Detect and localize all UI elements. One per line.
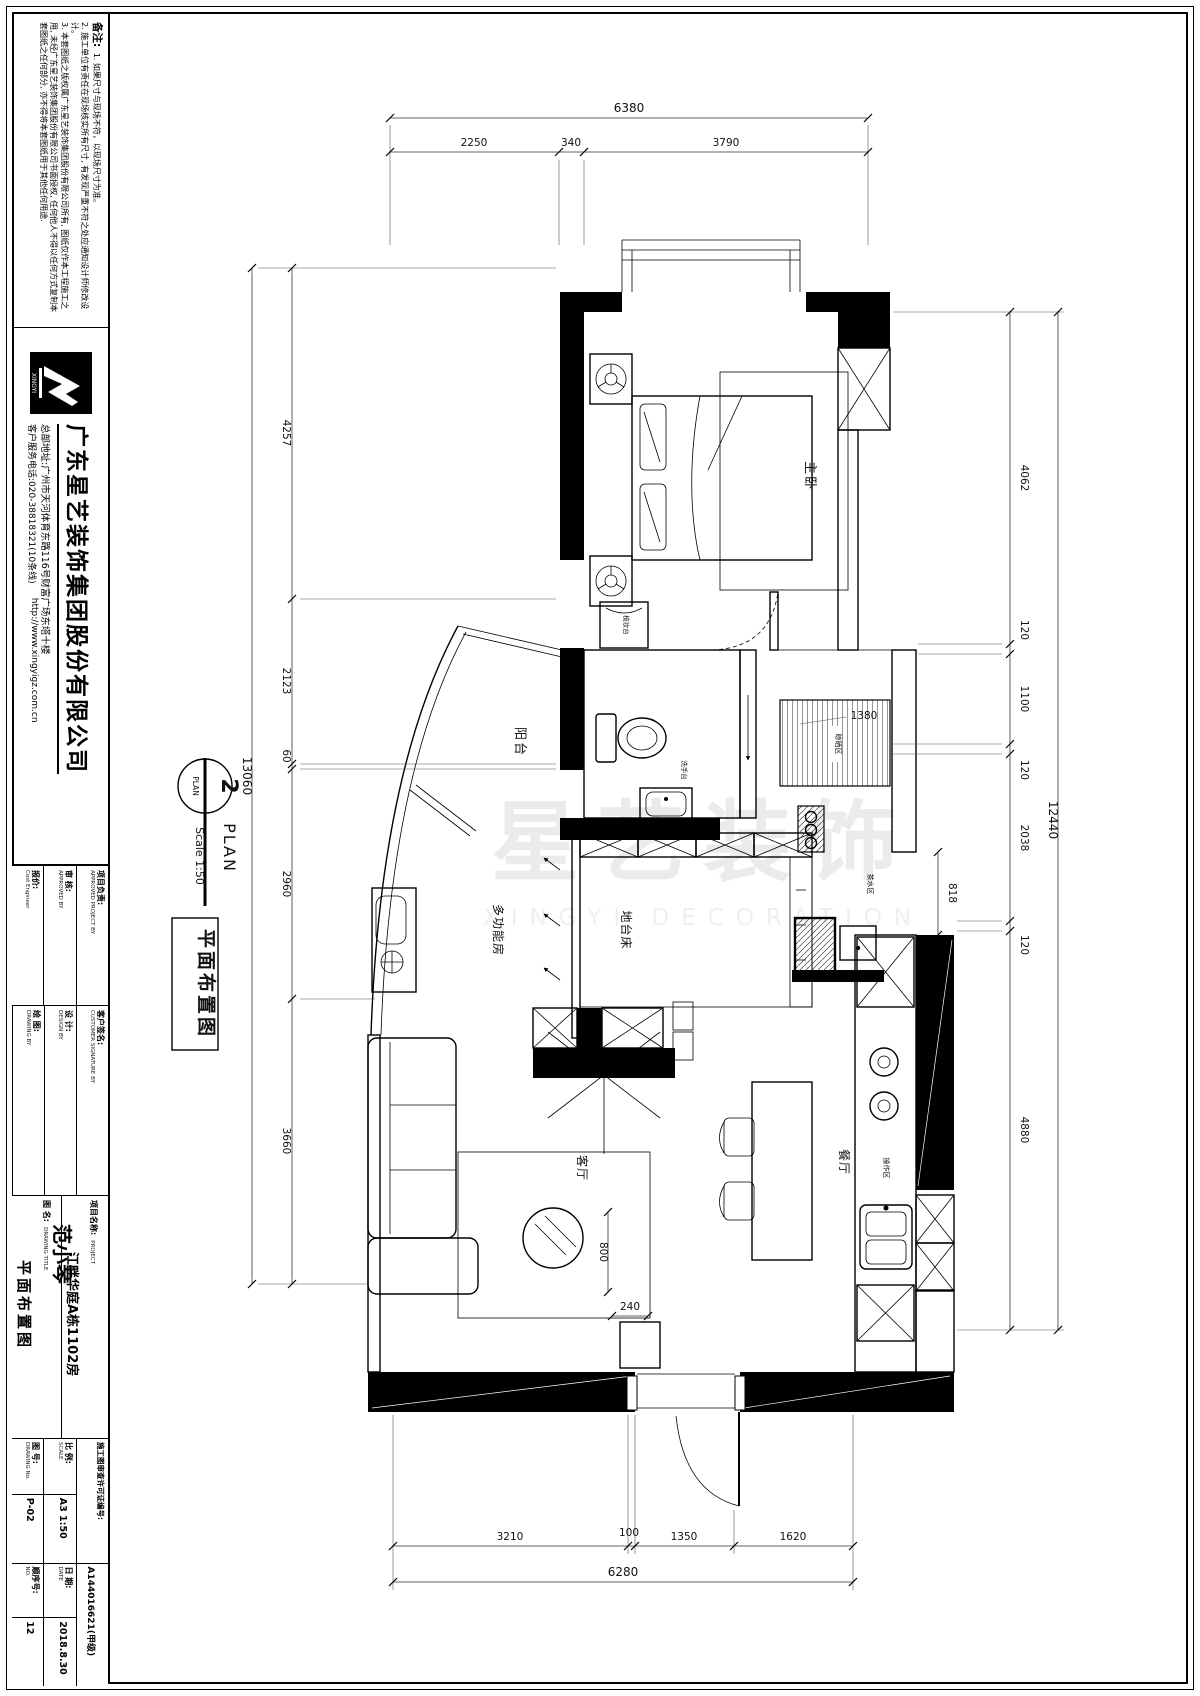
dim-bottom-1: 3210 xyxy=(497,1531,524,1543)
bedroom-rug xyxy=(720,372,848,590)
master-bedroom xyxy=(590,354,848,650)
dim-right-7: 4880 xyxy=(1018,1117,1030,1144)
room-label-work: 操作区 xyxy=(882,1158,891,1179)
sliding-door-arrows xyxy=(544,858,560,980)
dim-left-4: 2960 xyxy=(280,871,292,898)
dim-bottom: 3210 100 1350 1620 6280 xyxy=(389,1415,857,1590)
plan-marker-stamp: 平面布置图 xyxy=(195,929,218,1039)
dim-left-total: 13060 xyxy=(240,757,254,795)
dim-passage: 818 xyxy=(946,883,958,903)
living-rug xyxy=(458,1152,650,1318)
dim-bottom-4: 1620 xyxy=(780,1531,807,1543)
floor-plan: 主卧 阳台 多功能房 地台床 客厅 餐厅 晾晒区 茶水区 操作区 洗手台 梳妆台… xyxy=(0,0,1200,1696)
double-bed xyxy=(632,396,812,560)
bathroom xyxy=(596,695,748,820)
dim-left-5: 3660 xyxy=(280,1128,292,1155)
dim-bottom-2: 100 xyxy=(619,1527,639,1539)
dim-right-5: 2038 xyxy=(1018,825,1030,852)
living-room xyxy=(368,1032,660,1368)
dim-walkway: 800 xyxy=(597,1242,609,1262)
coffee-table xyxy=(523,1208,583,1268)
dim-right-6: 120 xyxy=(1018,935,1030,955)
toilet xyxy=(596,714,666,762)
room-label-multifunction: 多功能房 xyxy=(491,904,506,956)
shoe-cabinet xyxy=(620,1322,660,1368)
dim-left-3: 60 xyxy=(280,749,292,762)
room-label-drying: 晾晒区 xyxy=(834,734,843,755)
desk xyxy=(372,888,416,992)
gas-stove xyxy=(870,1048,898,1120)
nightstand-top xyxy=(590,354,632,404)
drawing-sheet: 星艺装饰 XINGYI DECORATION xyxy=(0,0,1200,1696)
room-label-master: 主卧 xyxy=(802,461,817,491)
dim-right-4: 120 xyxy=(1018,760,1030,780)
fixture-label-basin: 洗手台 xyxy=(680,760,689,780)
kitchen-sink xyxy=(860,1205,912,1269)
dining-table xyxy=(752,1082,812,1260)
plan-marker-title: PLAN xyxy=(220,823,239,873)
dim-bottom-total: 6280 xyxy=(608,1565,639,1579)
multifunction-room xyxy=(372,857,812,1007)
dim-cabinet: 240 xyxy=(620,1301,640,1313)
nightstand-bottom xyxy=(590,556,632,606)
plan-marker-scale: Scale 1:50 xyxy=(193,827,206,885)
room-label-dining: 餐厅 xyxy=(837,1149,852,1175)
dim-left: 13060 4257 2123 60 2960 3660 xyxy=(240,264,556,1288)
dim-top-3: 3790 xyxy=(713,137,740,149)
dim-top-2: 340 xyxy=(561,137,581,149)
room-label-balcony: 阳台 xyxy=(512,727,527,757)
dim-right-2: 120 xyxy=(1018,620,1030,640)
pipe-shaft xyxy=(798,806,824,852)
plan-marker: 2 PLAN PLAN Scale 1:50 平面布置图 xyxy=(172,758,241,1050)
plan-marker-number: 2 xyxy=(216,778,241,793)
wash-basin xyxy=(640,788,692,820)
fridge xyxy=(795,918,835,972)
dim-top-1: 2250 xyxy=(461,137,488,149)
dining-room xyxy=(720,1082,813,1260)
room-label-living: 客厅 xyxy=(575,1155,590,1181)
bedroom-door xyxy=(712,592,778,650)
prep-cabinet xyxy=(840,926,876,960)
dim-left-2: 2123 xyxy=(280,668,292,695)
dim-right-1: 4062 xyxy=(1018,465,1030,492)
dim-top: 6380 2250 340 3790 xyxy=(386,101,872,245)
dim-left-1: 4257 xyxy=(280,420,292,447)
bay-window xyxy=(622,240,800,292)
plan-marker-label: PLAN xyxy=(191,776,200,796)
cabinet-boxes xyxy=(533,833,954,1341)
dining-chair-2 xyxy=(720,1182,755,1220)
dim-top-total: 6380 xyxy=(614,101,645,115)
platform-bed-outline xyxy=(580,857,812,1007)
sofa xyxy=(368,1038,478,1294)
dim-right-total: 12440 xyxy=(1046,801,1060,839)
fixture-label-dresser: 梳妆台 xyxy=(622,615,631,635)
room-label-tea: 茶水区 xyxy=(866,874,875,895)
room-label-platform-bed: 地台床 xyxy=(619,910,634,949)
dining-chair-1 xyxy=(720,1118,755,1156)
dim-right-3: 1100 xyxy=(1018,686,1030,713)
dim-drying: 1380 xyxy=(851,710,878,722)
dim-interior: 1380 818 240 800 xyxy=(597,710,958,1320)
dim-bottom-3: 1350 xyxy=(671,1531,698,1543)
entrance-door xyxy=(627,1374,745,1506)
